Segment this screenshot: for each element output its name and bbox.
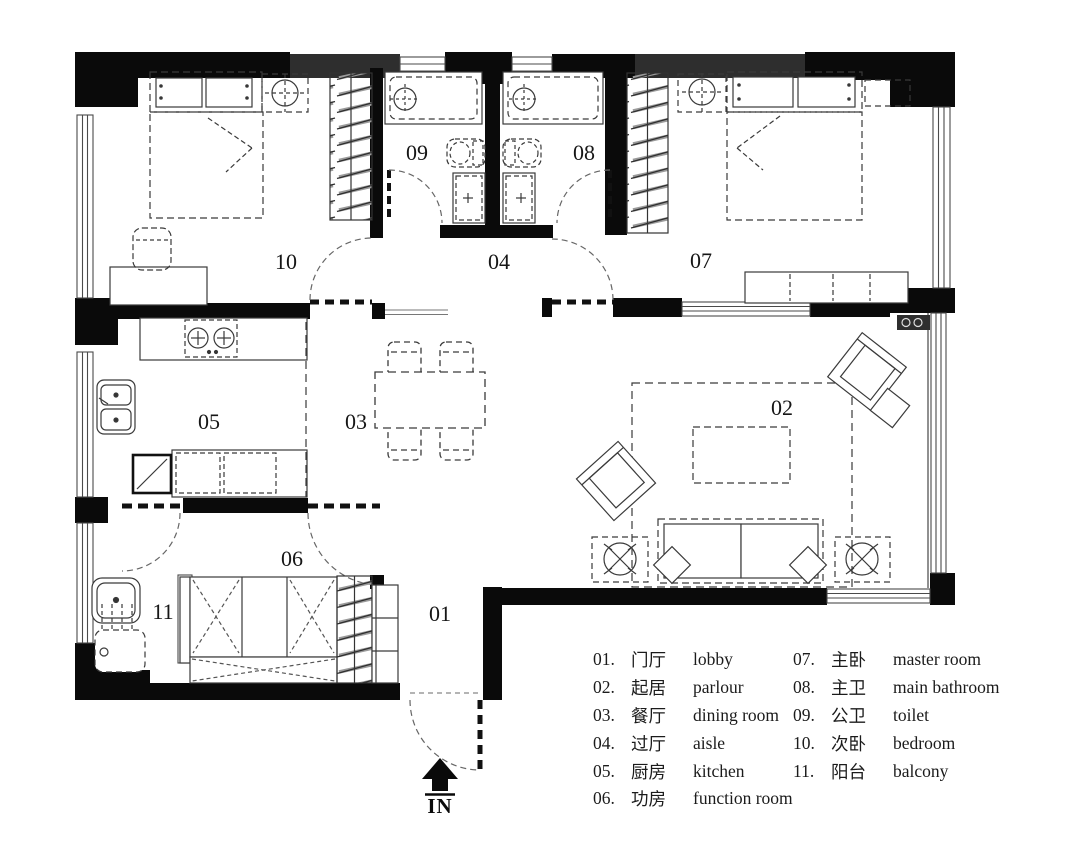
chair-bedroom <box>133 228 171 270</box>
window-left-balcony <box>77 523 93 643</box>
room-label-01: 01 <box>429 601 451 626</box>
oven <box>133 455 171 493</box>
legend-zh: 阳台 <box>831 759 893 784</box>
furniture-master-07 <box>627 72 930 330</box>
toilet-09 <box>447 139 485 167</box>
legend-column-2: 07.主卧master room 08.主卫main bathroom 09.公… <box>793 646 999 785</box>
room-label-07: 07 <box>690 248 712 273</box>
legend-num: 07. <box>793 649 831 670</box>
legend-en: function room <box>693 788 793 809</box>
door-toilet-09 <box>389 170 442 223</box>
door-kitchen-right <box>308 506 380 585</box>
north-arrow-icon <box>422 758 458 779</box>
legend-num: 11. <box>793 761 831 782</box>
window-left-kitchen <box>77 352 93 497</box>
legend-item: 09.公卫toilet <box>793 702 999 730</box>
corridor-threshold <box>385 310 448 315</box>
wardrobe-master <box>627 73 668 233</box>
legend-en: aisle <box>693 733 725 754</box>
entry-door <box>410 693 480 772</box>
legend-en: kitchen <box>693 761 745 782</box>
legend-num: 02. <box>593 677 631 698</box>
furniture-bedroom-10 <box>110 72 372 305</box>
legend-en: dining room <box>693 705 779 726</box>
legend-item: 08.主卫main bathroom <box>793 674 999 702</box>
room-label-08: 08 <box>573 140 595 165</box>
legend-num: 10. <box>793 733 831 754</box>
furniture-parlour-02 <box>576 333 909 587</box>
legend-num: 04. <box>593 733 631 754</box>
legend-item: 11.阳台balcony <box>793 757 999 785</box>
legend-zh: 主卧 <box>831 647 893 672</box>
vanity-08 <box>503 173 535 223</box>
room-label-11: 11 <box>152 599 173 624</box>
window-master-partition <box>682 302 810 316</box>
legend-zh: 主卫 <box>831 675 893 700</box>
legend-num: 08. <box>793 677 831 698</box>
desk-bedroom <box>110 267 207 305</box>
bathtub-08 <box>503 72 603 124</box>
room-label-09: 09 <box>406 140 428 165</box>
tatami-bed <box>180 577 337 683</box>
legend-column-1: 01.门厅lobby 02.起居parlour 03.餐厅dining room… <box>593 646 793 813</box>
entrance-arrow: IN <box>422 758 458 818</box>
furniture-function-06 <box>180 576 372 683</box>
legend-item: 10.次卧bedroom <box>793 729 999 757</box>
room-label-03: 03 <box>345 409 367 434</box>
ceiling-fan-bedroom <box>262 74 308 112</box>
legend-num: 05. <box>593 761 631 782</box>
window-right-parlour <box>931 313 946 573</box>
furniture-dining-03 <box>375 342 485 460</box>
furniture-kitchen-05 <box>97 318 307 497</box>
legend-zh: 厨房 <box>631 759 693 784</box>
legend-zh: 过厅 <box>631 731 693 756</box>
shoe-cabinet <box>372 585 398 683</box>
window-left-bedroom <box>77 115 93 298</box>
legend-zh: 起居 <box>631 675 693 700</box>
vanity-09 <box>453 173 485 223</box>
legend-item: 03.餐厅dining room <box>593 702 793 730</box>
legend-zh: 功房 <box>631 786 693 811</box>
legend-zh: 公卫 <box>831 703 893 728</box>
legend-item: 07.主卧master room <box>793 646 999 674</box>
balcony-sink <box>92 578 140 623</box>
room-label-04: 04 <box>488 249 510 274</box>
door-bathroom-08 <box>557 170 610 223</box>
legend-item: 05.厨房kitchen <box>593 757 793 785</box>
legend-item: 02.起居parlour <box>593 674 793 702</box>
legend-en: parlour <box>693 677 744 698</box>
bed-master <box>727 72 862 220</box>
kitchen-sink <box>97 380 135 434</box>
washing-machine <box>95 630 145 672</box>
furniture-balcony-11 <box>92 578 145 672</box>
window-bottom-parlour <box>827 589 930 603</box>
room-label-10: 10 <box>275 249 297 274</box>
cabinet-master <box>745 272 908 303</box>
armchair-left <box>576 441 655 520</box>
furniture-lobby-01 <box>372 585 398 683</box>
coffee-table <box>693 427 790 483</box>
room-label-02: 02 <box>771 395 793 420</box>
wardrobe-bedroom <box>330 73 372 220</box>
door-kitchen-left <box>122 506 183 571</box>
furniture-toilet-09 <box>385 72 485 223</box>
room-label-06: 06 <box>281 546 303 571</box>
legend-en: master room <box>893 649 981 670</box>
legend-num: 01. <box>593 649 631 670</box>
legend-item: 01.门厅lobby <box>593 646 793 674</box>
legend-zh: 次卧 <box>831 731 893 756</box>
legend-zh: 餐厅 <box>631 703 693 728</box>
sofa <box>654 519 827 583</box>
legend-item: 04.过厅aisle <box>593 729 793 757</box>
ac-unit <box>897 315 930 330</box>
kitchen-counter-bottom <box>172 450 307 497</box>
legend-num: 06. <box>593 788 631 809</box>
legend-en: lobby <box>693 649 733 670</box>
legend-en: balcony <box>893 761 948 782</box>
legend-item: 06.功房function room <box>593 785 793 813</box>
bathtub-09 <box>385 72 482 124</box>
legend-en: toilet <box>893 705 929 726</box>
door-bedroom-10 <box>310 238 372 302</box>
bed-bedroom <box>150 72 263 218</box>
side-table-right <box>835 537 890 582</box>
entrance-in-label: IN <box>427 794 452 818</box>
dining-table <box>375 372 485 428</box>
room-label-05: 05 <box>198 409 220 434</box>
side-table-left <box>592 537 648 582</box>
legend-num: 09. <box>793 705 831 726</box>
ceiling-fan-master <box>678 73 726 112</box>
floor-plan-canvas: 01 02 03 04 05 06 07 08 09 10 11 IN 01.门… <box>0 0 1080 850</box>
legend-en: main bathroom <box>893 677 999 698</box>
legend-en: bedroom <box>893 733 955 754</box>
legend-zh: 门厅 <box>631 647 693 672</box>
wardrobe-function <box>337 576 372 683</box>
door-master-07 <box>552 239 613 302</box>
window-right-master <box>933 107 950 288</box>
toilet-08 <box>503 139 541 167</box>
legend-num: 03. <box>593 705 631 726</box>
